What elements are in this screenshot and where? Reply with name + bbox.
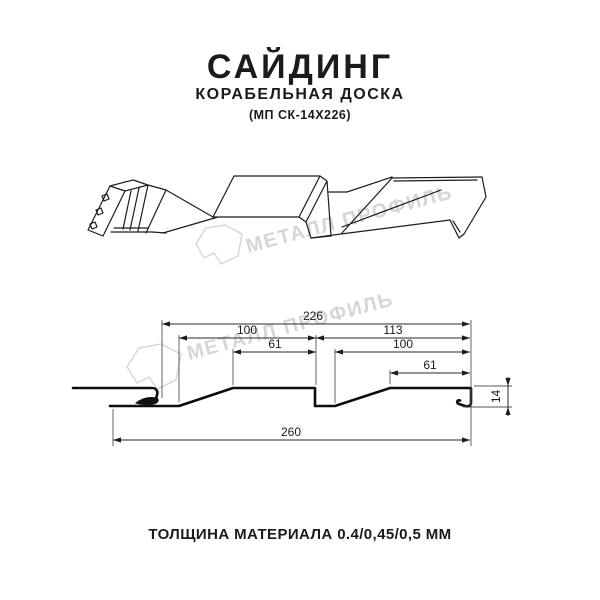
dim-right-span: 113 <box>383 323 402 337</box>
profile-outline <box>73 388 471 406</box>
brand-logo-icon <box>127 344 181 389</box>
dim-left-pitch: 100 <box>237 323 257 337</box>
thickness-note: ТОЛЩИНА МАТЕРИАЛА 0.4/0,45/0,5 ММ <box>0 526 600 543</box>
brand-watermark: МЕТАЛЛ ПРОФИЛЬ <box>127 288 396 389</box>
lock-folds <box>110 180 213 233</box>
brand-logo-icon <box>196 225 242 264</box>
dim-overall: 260 <box>281 425 301 439</box>
lock-curl <box>136 398 158 405</box>
dim-right-crest: 61 <box>423 358 437 372</box>
dim-right-pitch: 100 <box>393 337 413 351</box>
dim-coverage: 226 <box>303 309 323 323</box>
brand-watermark-text: МЕТАЛЛ ПРОФИЛЬ <box>185 288 397 364</box>
dim-left-crest: 61 <box>268 337 282 351</box>
cross-section-drawing <box>73 388 471 406</box>
product-drawing-page: САЙДИНГ КОРАБЕЛЬНАЯ ДОСКА (МП СК-14Х226)… <box>0 0 600 600</box>
dim-height: 14 <box>489 390 503 404</box>
brand-watermark: МЕТАЛЛ ПРОФИЛЬ <box>196 181 455 264</box>
brand-watermark-text: МЕТАЛЛ ПРОФИЛЬ <box>244 181 456 257</box>
end-hook <box>450 177 486 238</box>
technical-drawing-canvas: МЕТАЛЛ ПРОФИЛЬ МЕТАЛЛ ПРОФИЛЬ <box>0 0 600 600</box>
flange-holes <box>90 194 109 229</box>
